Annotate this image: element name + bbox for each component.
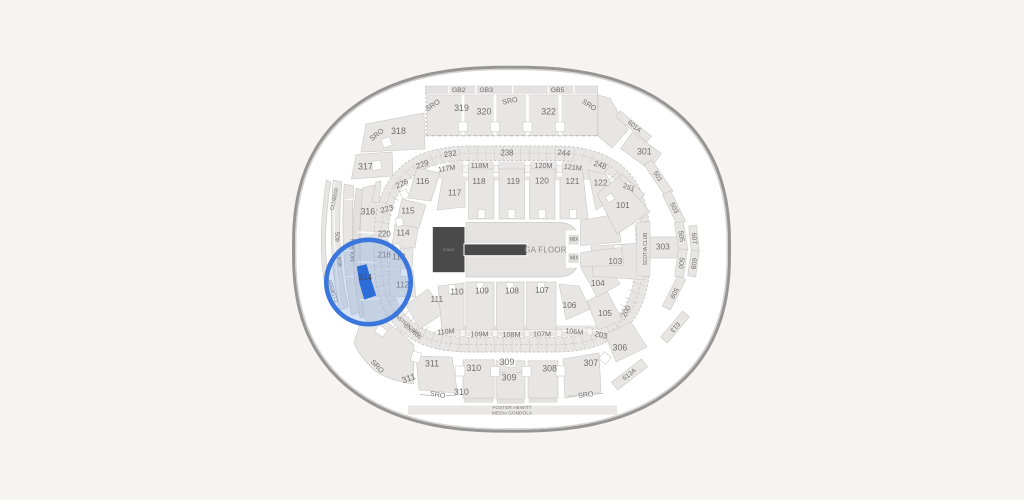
svg-text:232: 232 bbox=[443, 149, 457, 160]
svg-text:118: 118 bbox=[472, 176, 486, 186]
svg-text:MIX: MIX bbox=[570, 237, 580, 243]
svg-text:GB3: GB3 bbox=[479, 87, 493, 94]
svg-text:109: 109 bbox=[475, 286, 489, 296]
svg-text:607: 607 bbox=[690, 233, 698, 245]
svg-text:111: 111 bbox=[430, 294, 443, 304]
svg-text:116: 116 bbox=[416, 176, 430, 186]
svg-text:GB5: GB5 bbox=[551, 87, 565, 94]
svg-text:320: 320 bbox=[477, 107, 492, 117]
svg-text:119: 119 bbox=[507, 176, 521, 186]
svg-text:110: 110 bbox=[450, 286, 464, 296]
svg-text:115: 115 bbox=[401, 206, 415, 216]
svg-text:322: 322 bbox=[541, 107, 556, 117]
svg-text:106M: 106M bbox=[565, 326, 584, 337]
svg-text:GA FLOOR: GA FLOOR bbox=[524, 245, 566, 254]
svg-text:GB2: GB2 bbox=[452, 87, 466, 94]
svg-text:311: 311 bbox=[425, 359, 439, 369]
svg-text:107M: 107M bbox=[533, 330, 551, 339]
svg-text:308: 308 bbox=[542, 364, 557, 374]
svg-text:STAGE: STAGE bbox=[443, 248, 455, 252]
svg-text:310: 310 bbox=[454, 387, 469, 397]
svg-text:109M: 109M bbox=[471, 329, 489, 338]
svg-text:309: 309 bbox=[502, 373, 517, 383]
svg-text:SCOTIA CLUB: SCOTIA CLUB bbox=[643, 232, 649, 266]
svg-text:405: 405 bbox=[334, 231, 342, 242]
svg-text:MEDIA GONDOLA: MEDIA GONDOLA bbox=[492, 410, 533, 416]
svg-text:MIX: MIX bbox=[570, 256, 580, 262]
svg-text:318: 318 bbox=[391, 126, 406, 136]
svg-text:103: 103 bbox=[608, 256, 622, 266]
svg-text:309: 309 bbox=[500, 357, 515, 367]
svg-text:106: 106 bbox=[563, 300, 577, 310]
svg-text:118M: 118M bbox=[471, 161, 488, 170]
svg-text:108: 108 bbox=[505, 285, 519, 295]
svg-text:120M: 120M bbox=[535, 161, 553, 170]
svg-text:114: 114 bbox=[396, 227, 410, 237]
svg-text:122: 122 bbox=[594, 177, 608, 187]
svg-text:319: 319 bbox=[454, 103, 469, 113]
svg-text:238: 238 bbox=[500, 148, 513, 157]
svg-text:121: 121 bbox=[565, 176, 579, 186]
svg-text:303: 303 bbox=[656, 241, 670, 251]
svg-text:314: 314 bbox=[358, 272, 372, 282]
svg-text:101: 101 bbox=[616, 200, 630, 210]
svg-text:107: 107 bbox=[535, 285, 549, 295]
svg-text:306: 306 bbox=[613, 343, 628, 353]
svg-text:FOSTER HEWITT: FOSTER HEWITT bbox=[492, 405, 531, 411]
svg-text:104: 104 bbox=[591, 278, 605, 288]
svg-text:310: 310 bbox=[466, 363, 481, 373]
svg-text:307: 307 bbox=[583, 358, 598, 368]
svg-text:244: 244 bbox=[557, 148, 572, 158]
svg-text:220: 220 bbox=[378, 230, 392, 239]
svg-text:108M: 108M bbox=[503, 330, 521, 339]
svg-text:121M: 121M bbox=[563, 162, 582, 173]
svg-text:105: 105 bbox=[598, 308, 612, 318]
svg-text:301: 301 bbox=[637, 147, 652, 157]
svg-text:110M: 110M bbox=[437, 326, 455, 337]
svg-text:120: 120 bbox=[535, 176, 549, 186]
svg-text:316: 316 bbox=[360, 207, 375, 217]
svg-text:117: 117 bbox=[448, 188, 462, 198]
svg-text:317: 317 bbox=[358, 162, 373, 172]
